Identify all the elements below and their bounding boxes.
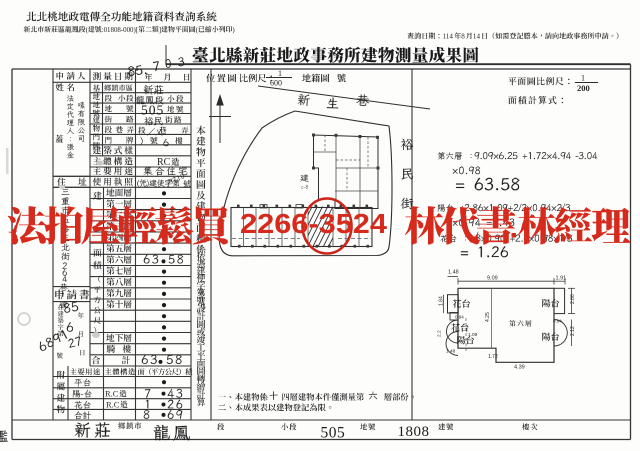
svg-text:4.25: 4.25 [485,312,491,322]
svg-text:600: 600 [270,79,282,88]
svg-text:8: 8 [461,33,465,41]
svg-text:1: 1 [581,74,585,83]
svg-text:1.91: 1.91 [556,276,567,282]
svg-text:R.C: R.C [106,399,120,409]
svg-text:]: ] [159,27,161,34]
svg-text:1.72: 1.72 [488,354,498,360]
svg-text:1: 1 [278,69,282,78]
svg-text:0.94: 0.94 [553,319,562,324]
svg-text:0.94: 0.94 [455,315,464,320]
svg-text:505: 505 [321,425,346,442]
svg-text:14: 14 [473,33,481,41]
svg-text:1.48: 1.48 [448,270,459,276]
svg-text::01808-000)[: :01808-000)[ [102,27,139,34]
svg-text:200: 200 [577,83,590,93]
svg-text:505: 505 [141,103,164,118]
svg-text:2.12: 2.12 [570,326,576,336]
svg-text:2.86: 2.86 [570,294,576,304]
svg-text:1.84: 1.84 [439,296,445,306]
svg-text:RC: RC [157,157,171,168]
svg-text:R.C: R.C [105,389,119,399]
svg-text:4.39: 4.39 [514,365,525,371]
svg-text:9.09: 9.09 [487,276,498,282]
svg-text:2.2: 2.2 [437,330,443,337]
svg-text:): ) [232,27,234,34]
svg-text:1808: 1808 [398,424,430,440]
svg-text:1.48: 1.48 [446,349,456,355]
svg-text:2266-3524: 2266-3524 [240,208,387,239]
svg-text:1.09: 1.09 [468,332,478,338]
svg-text:114: 114 [443,33,454,41]
